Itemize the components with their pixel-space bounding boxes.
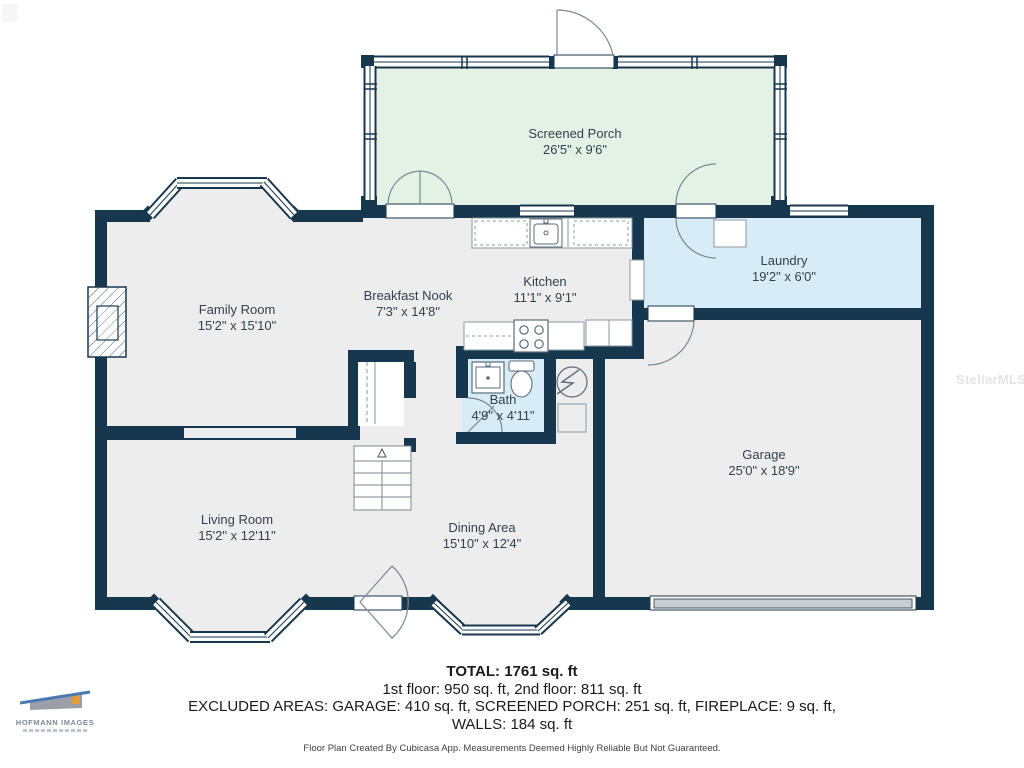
walls-area-line: WALLS: 184 sq. ft (0, 716, 1024, 734)
fireplace-icon (88, 287, 126, 357)
disclaimer: Floor Plan Created By Cubicasa App. Meas… (0, 740, 1024, 758)
floor-plan-drawing (0, 0, 1024, 768)
room-label-kitchen: Kitchen 11'1" x 9'1" (513, 274, 576, 305)
porch-door-leaf (554, 55, 614, 68)
fridge-icon (586, 320, 632, 346)
kitchen-sink-icon (530, 219, 562, 247)
hofmann-images-logo: HOFMANN IMAGES (14, 688, 96, 732)
stove-icon (514, 320, 548, 352)
excluded-areas-line: EXCLUDED AREAS: GARAGE: 410 sq. ft, SCRE… (0, 698, 1024, 716)
room-label-screened-porch: Screened Porch 26'5" x 9'6" (528, 126, 621, 157)
laundry-door-threshold (676, 204, 716, 218)
hofmann-logo-tagline (23, 729, 87, 732)
room-label-garage: Garage 25'0" x 18'9" (728, 447, 799, 478)
room-label-family-room: Family Room 15'2" x 15'10" (198, 302, 277, 333)
kitchen-counter-top (472, 218, 632, 248)
room-label-breakfast-nook: Breakfast Nook 7'3" x 14'8" (364, 288, 453, 319)
room-label-dining-area: Dining Area 15'10" x 12'4" (443, 520, 522, 551)
bath-sink-icon (472, 362, 504, 393)
room-label-bath: Bath 4'9" x 4'11" (471, 392, 534, 423)
room-label-living-room: Living Room 15'2" x 12'11" (198, 512, 276, 543)
stellar-mls-watermark: StellarMLS (956, 372, 1024, 387)
laundry-cabinet (630, 260, 644, 300)
area-summary: TOTAL: 1761 sq. ft 1st floor: 950 sq. ft… (0, 663, 1024, 758)
washer-icon (714, 220, 746, 247)
stairs-icon (354, 446, 411, 510)
stairs-upper (358, 362, 404, 426)
room-label-laundry: Laundry 19'2" x 6'0" (752, 253, 816, 284)
garage-entry-threshold (648, 306, 694, 321)
total-area: TOTAL: 1761 sq. ft (0, 663, 1024, 681)
french-door-threshold (386, 204, 454, 218)
hofmann-logo-title: HOFMANN IMAGES (14, 718, 96, 727)
garage-door-icon (654, 599, 912, 608)
corner-watermark (2, 4, 18, 22)
hofmann-logo-roof-icon (14, 688, 96, 712)
porch-exit-door-icon (557, 10, 613, 55)
floor-plan-page: Screened Porch 26'5" x 9'6" Family Room … (0, 0, 1024, 768)
floor-areas-line: 1st floor: 950 sq. ft, 2nd floor: 811 sq… (0, 681, 1024, 699)
